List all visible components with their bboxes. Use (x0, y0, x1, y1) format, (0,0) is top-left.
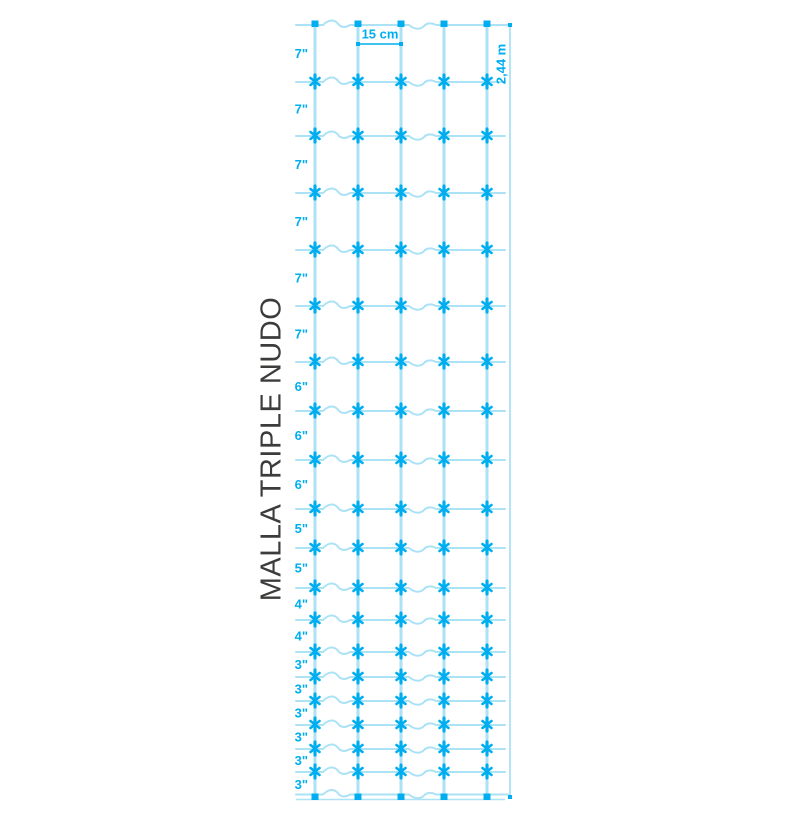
row-spacing-label: 3" (295, 682, 308, 697)
row-spacing-label: 3" (295, 706, 308, 721)
row-spacing-label: 7" (295, 157, 308, 172)
row-spacing-label: 5" (295, 561, 308, 576)
row-spacing-label: 7" (295, 214, 308, 229)
edge-clamp-knot-icon (355, 794, 362, 801)
row-spacing-label: 4" (295, 597, 308, 612)
diagram-canvas: 7"7"7"7"7"7"6"6"6"5"5"4"4"3"3"3"3"3"3" M… (0, 0, 795, 820)
edge-clamp-knot-icon (484, 21, 491, 28)
row-spacing-label: 4" (295, 629, 308, 644)
row-spacing-label: 7" (295, 46, 308, 61)
dimension-end-tick (508, 795, 512, 799)
cell-width-dimension-label: 15 cm (362, 27, 399, 42)
row-spacing-label: 6" (295, 428, 308, 443)
edge-clamp-knot-icon (312, 21, 319, 28)
product-title: MALLA TRIPLE NUDO (256, 297, 289, 602)
edge-clamp-knot-icon (398, 21, 405, 28)
row-spacing-label: 5" (295, 521, 308, 536)
row-spacing-label: 6" (295, 477, 308, 492)
edge-clamp-knot-icon (441, 794, 448, 801)
edge-clamp-knot-icon (441, 21, 448, 28)
row-spacing-label: 7" (295, 271, 308, 286)
dimension-end-tick (508, 23, 512, 27)
row-spacing-label: 6" (295, 379, 308, 394)
total-height-dimension-label: 2,44 m (494, 44, 509, 84)
row-spacing-label: 7" (295, 102, 308, 117)
row-spacing-label: 3" (295, 753, 308, 768)
edge-clamp-knot-icon (312, 794, 319, 801)
dimension-end-tick (356, 42, 360, 46)
edge-clamp-knot-icon (398, 794, 405, 801)
edge-clamp-knot-icon (355, 21, 362, 28)
row-spacing-label: 3" (295, 777, 308, 792)
mesh-drawing: 7"7"7"7"7"7"6"6"6"5"5"4"4"3"3"3"3"3"3" (0, 0, 795, 820)
dimension-end-tick (399, 42, 403, 46)
row-spacing-label: 3" (295, 730, 308, 745)
row-spacing-label: 3" (295, 657, 308, 672)
edge-clamp-knot-icon (484, 794, 491, 801)
row-spacing-label: 7" (295, 327, 308, 342)
